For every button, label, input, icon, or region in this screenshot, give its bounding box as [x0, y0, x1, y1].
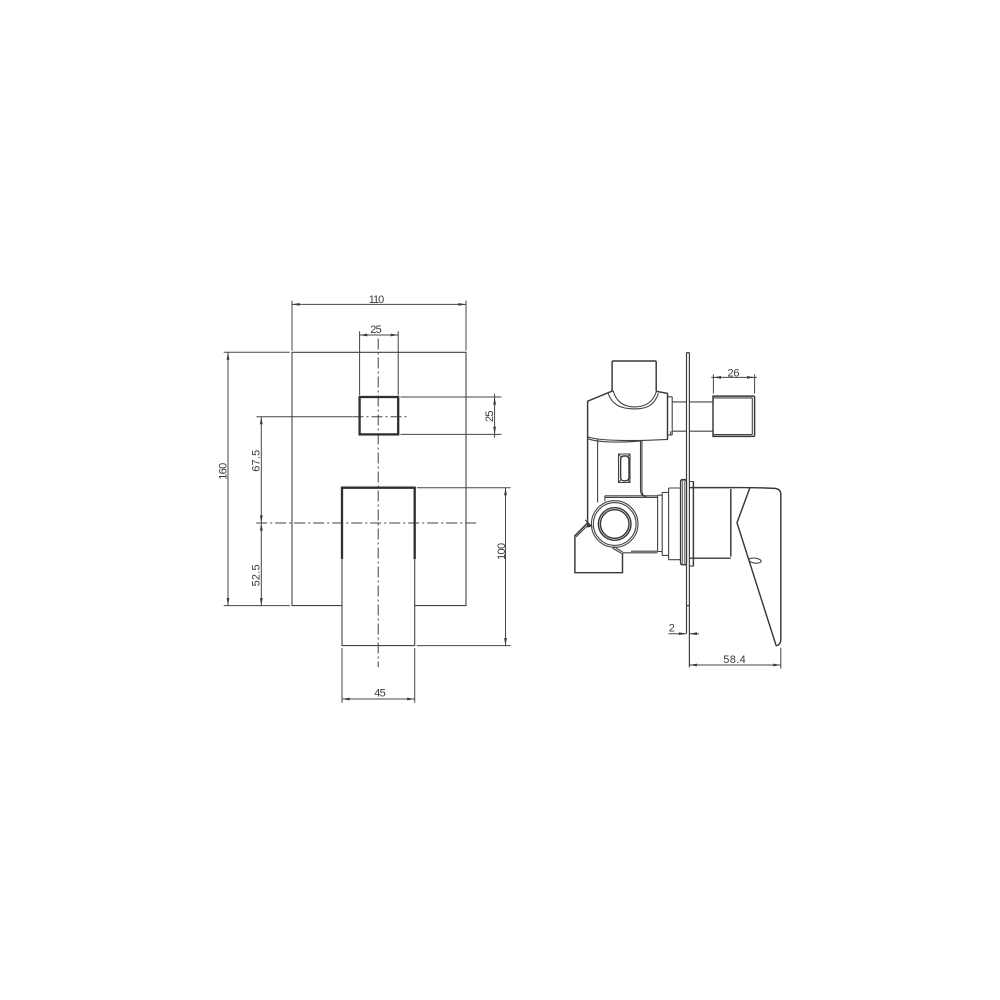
- svg-text:58.4: 58.4: [723, 654, 746, 666]
- svg-text:67.5: 67.5: [251, 450, 263, 472]
- svg-text:25: 25: [484, 410, 496, 422]
- svg-text:25: 25: [370, 324, 382, 336]
- svg-text:52.5: 52.5: [251, 564, 263, 586]
- svg-text:160: 160: [217, 463, 229, 480]
- svg-text:45: 45: [374, 688, 386, 700]
- svg-text:110: 110: [369, 294, 385, 306]
- svg-text:100: 100: [496, 543, 508, 560]
- svg-text:2: 2: [669, 623, 675, 635]
- svg-text:26: 26: [728, 367, 740, 379]
